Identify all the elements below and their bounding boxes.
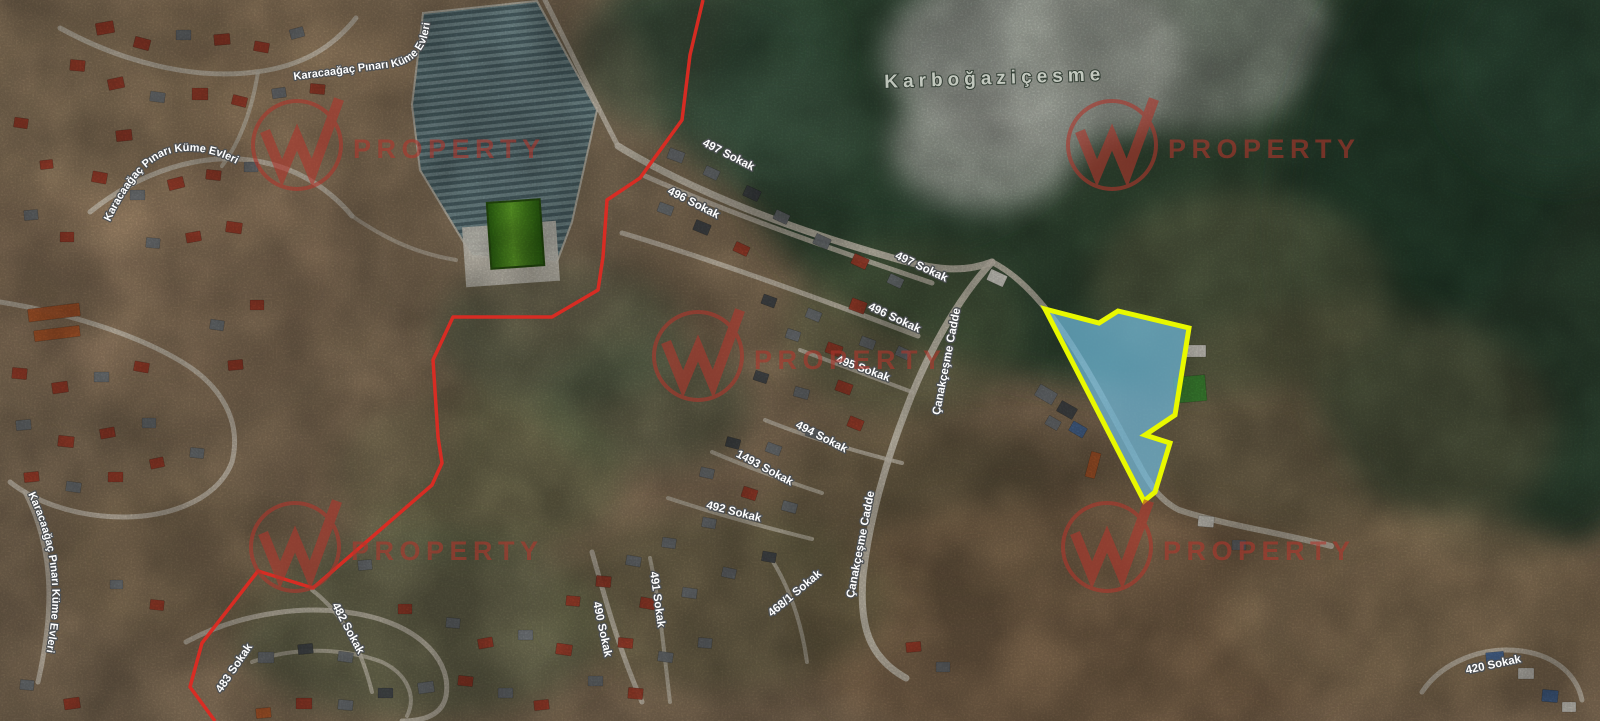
satellite-map-image: Karacaağaç Pınarı Küme EvleriKaracaağaç …: [0, 0, 1600, 721]
watermark-text: PROPERTY: [754, 345, 947, 375]
watermark-text: PROPERTY: [351, 536, 544, 566]
watermark-text: PROPERTY: [1163, 536, 1356, 566]
watermark-text: PROPERTY: [1168, 134, 1361, 164]
map-canvas: Karacaağaç Pınarı Küme EvleriKaracaağaç …: [0, 0, 1600, 721]
watermark-text: PROPERTY: [353, 134, 546, 164]
